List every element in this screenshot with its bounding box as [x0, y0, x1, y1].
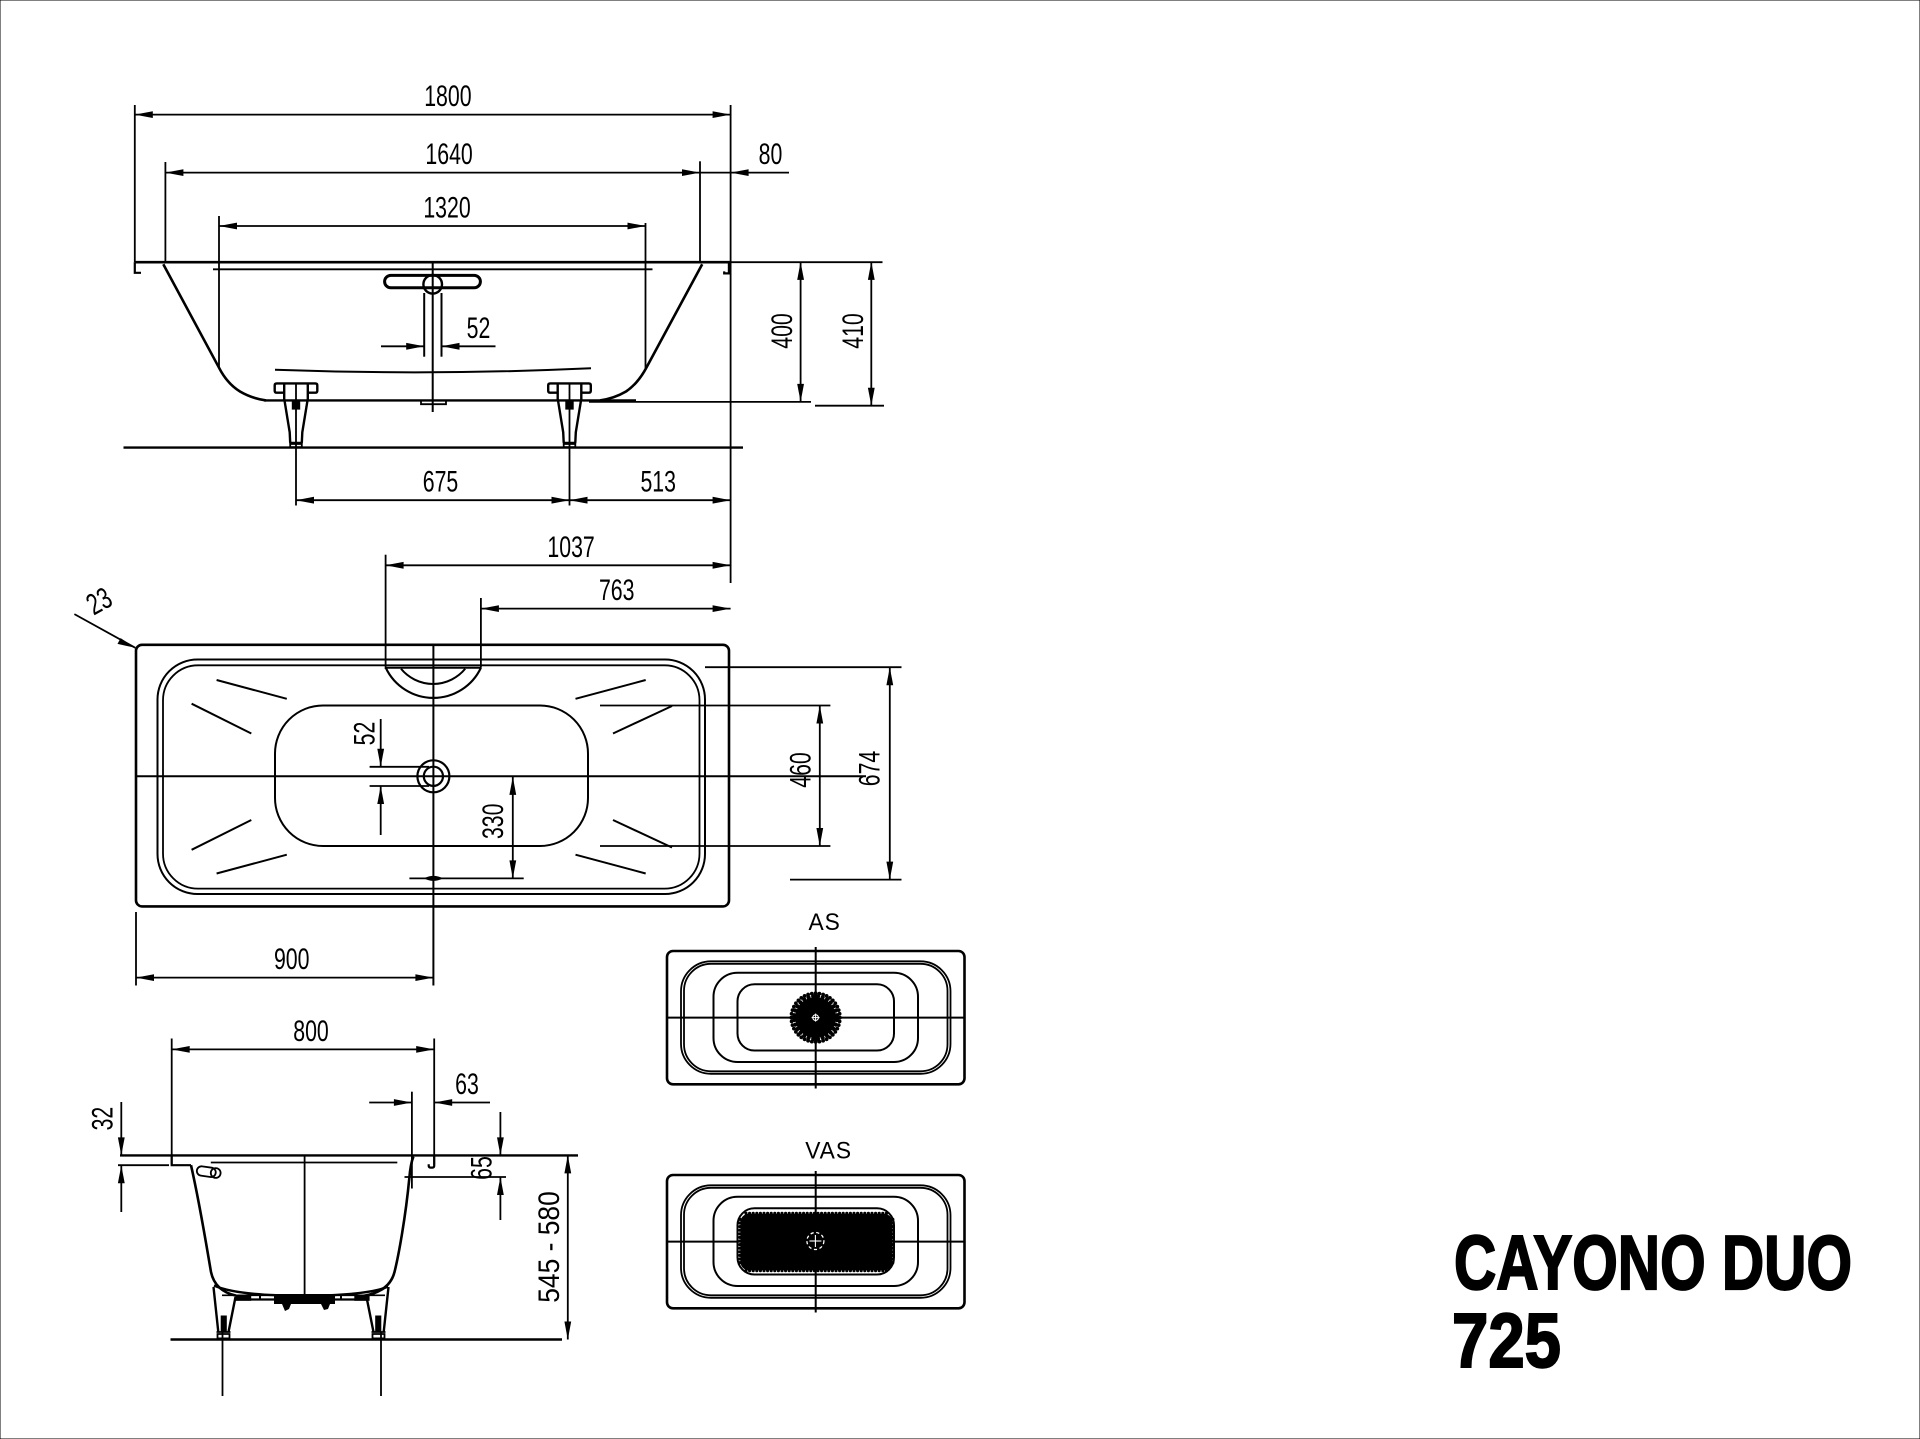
svg-text:63: 63 [455, 1066, 479, 1101]
svg-text:AS: AS [808, 908, 840, 935]
svg-text:80: 80 [759, 137, 783, 172]
svg-text:400: 400 [764, 313, 799, 349]
svg-text:VAS: VAS [805, 1137, 852, 1164]
svg-text:1800: 1800 [424, 79, 471, 114]
svg-text:410: 410 [835, 313, 870, 349]
svg-text:725: 725 [1452, 1298, 1561, 1384]
svg-text:460: 460 [783, 752, 818, 788]
svg-text:23: 23 [80, 580, 117, 622]
svg-text:32: 32 [85, 1107, 120, 1131]
svg-text:763: 763 [599, 572, 635, 607]
svg-text:1320: 1320 [423, 190, 470, 225]
svg-text:513: 513 [640, 464, 676, 499]
svg-text:65: 65 [464, 1156, 499, 1180]
svg-text:52: 52 [347, 722, 382, 746]
svg-text:1640: 1640 [425, 137, 472, 172]
svg-text:545 - 580: 545 - 580 [531, 1191, 565, 1303]
svg-text:330: 330 [475, 804, 510, 840]
svg-text:800: 800 [293, 1013, 329, 1048]
svg-text:675: 675 [423, 464, 459, 499]
svg-text:52: 52 [467, 310, 491, 345]
svg-text:CAYONO DUO: CAYONO DUO [1454, 1220, 1852, 1306]
svg-text:1037: 1037 [547, 529, 594, 564]
svg-text:674: 674 [852, 751, 887, 787]
svg-text:900: 900 [274, 941, 310, 976]
